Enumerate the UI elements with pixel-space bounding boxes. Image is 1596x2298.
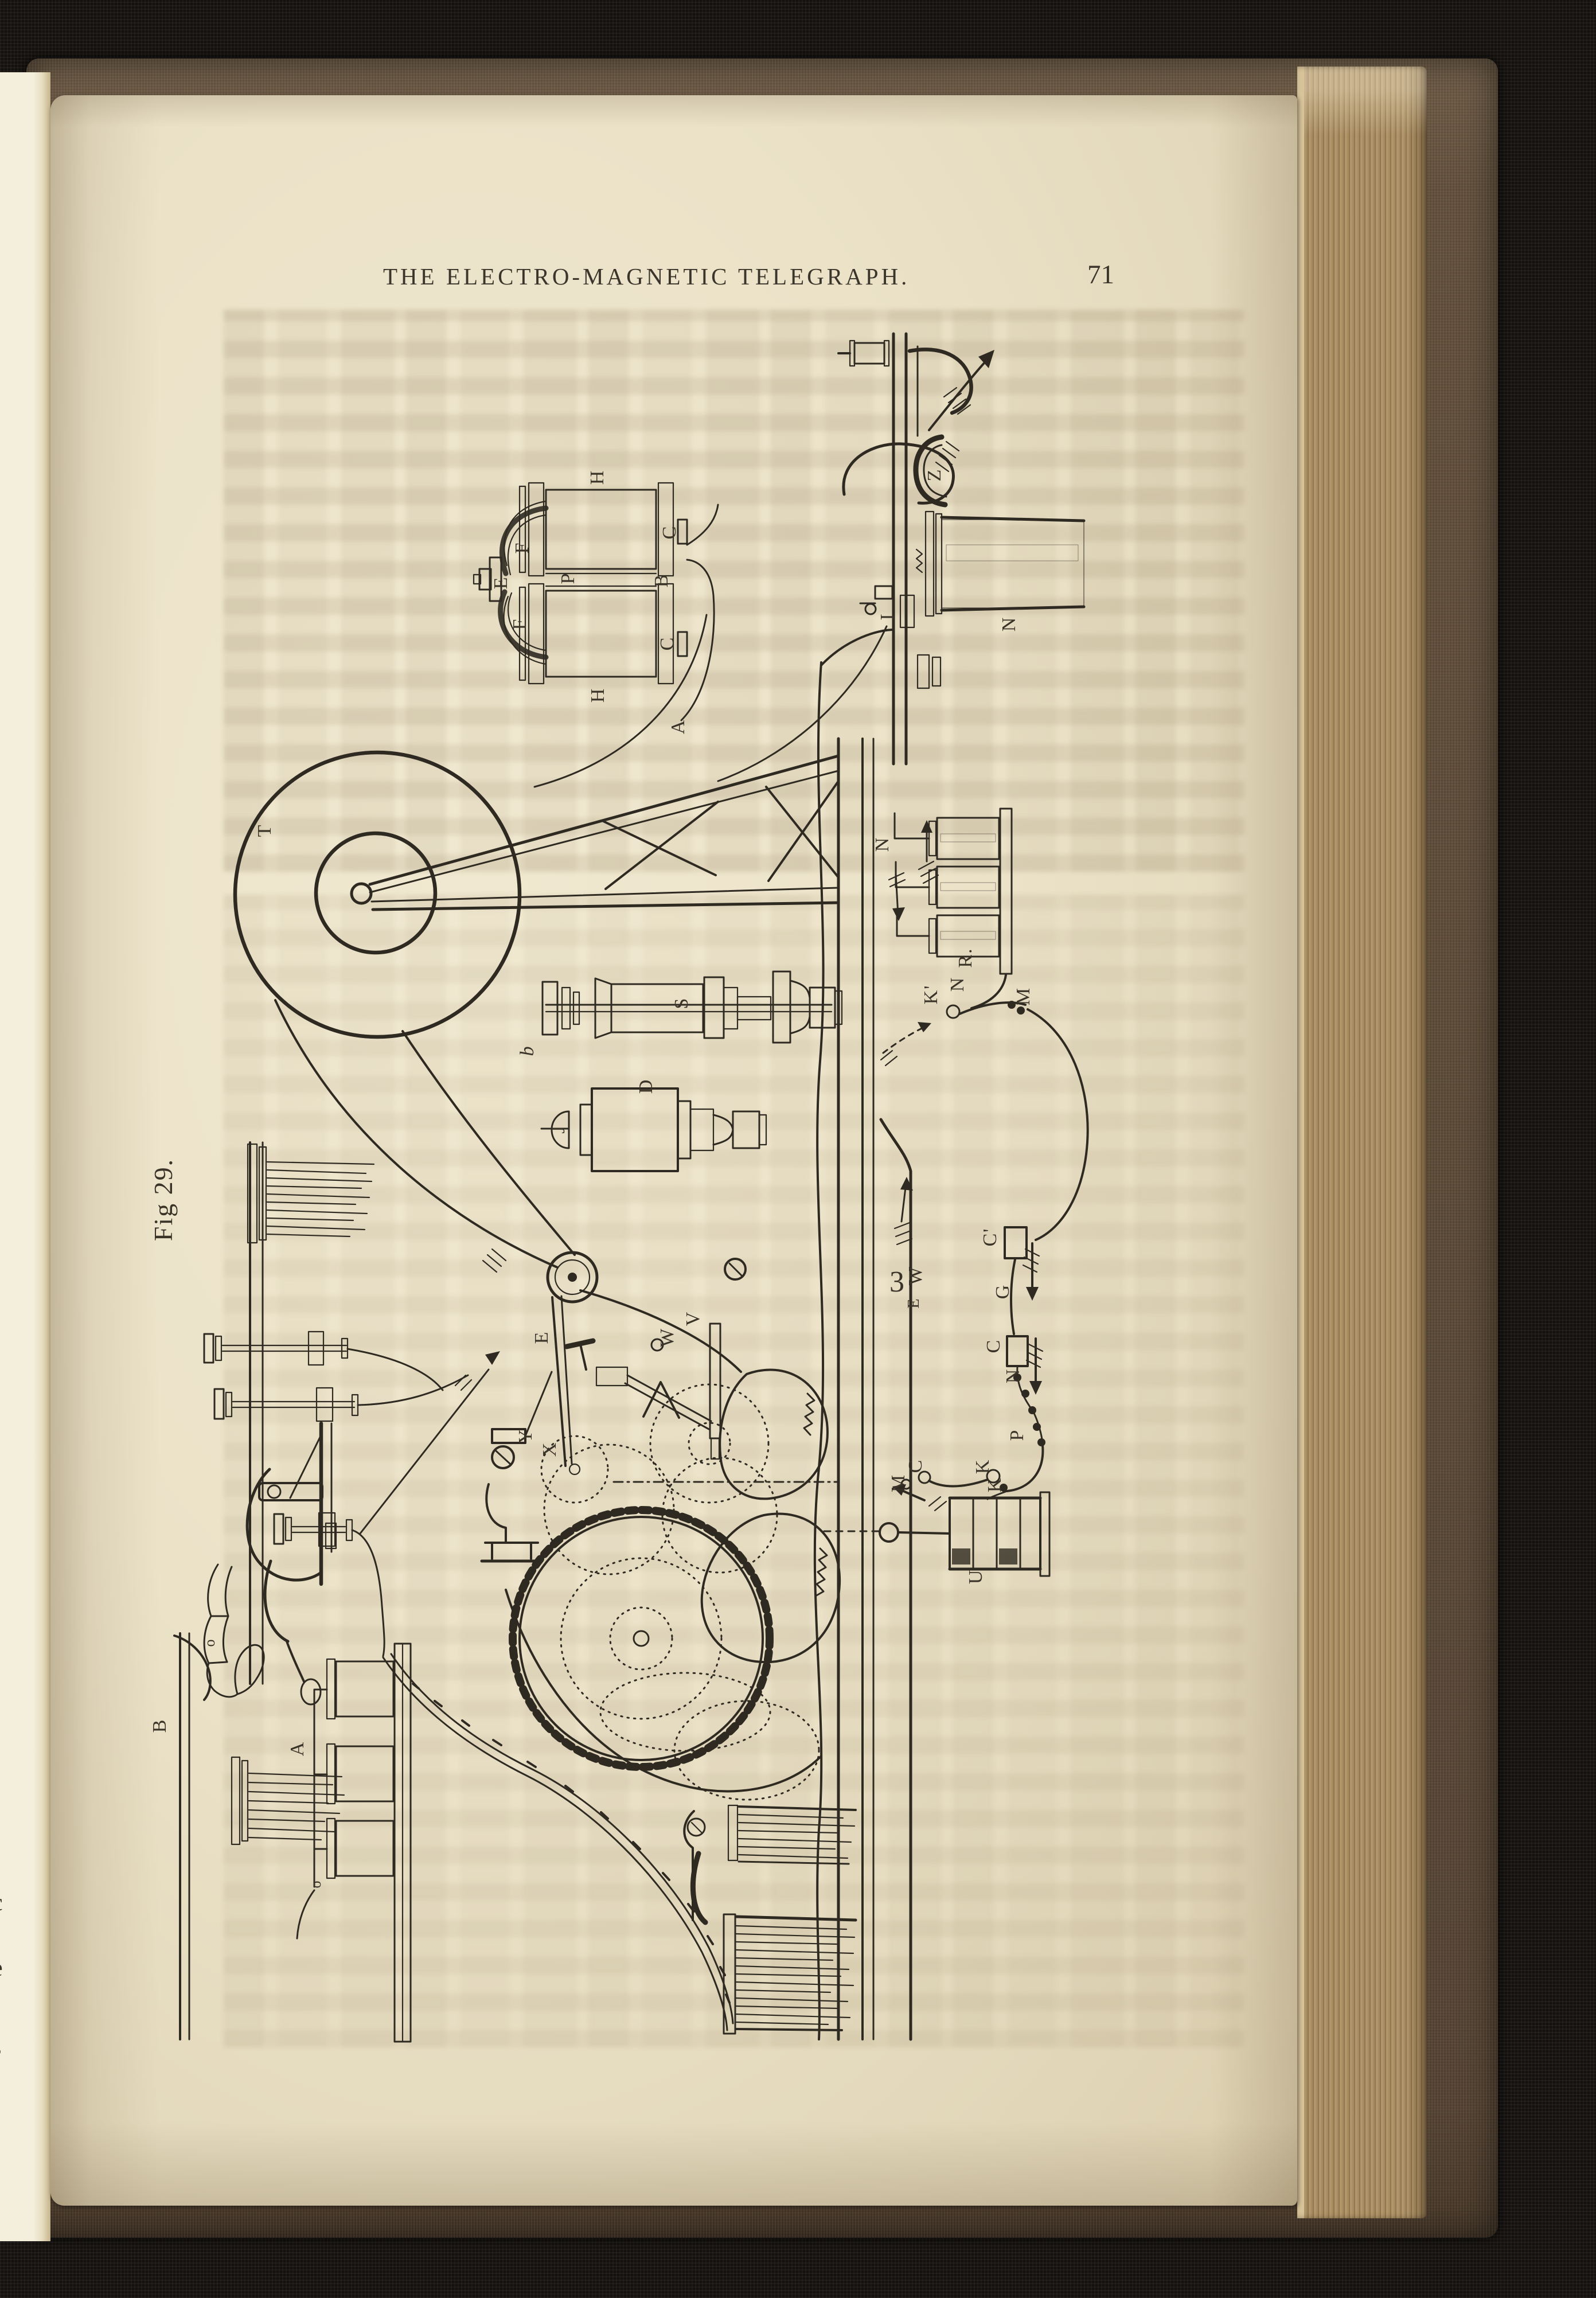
- stylus-post-and-paper-roll: [534, 334, 1084, 787]
- telegraph-key-and-hand: [204, 1423, 336, 1704]
- figure-label: C: [905, 1459, 926, 1473]
- figure-label: P: [1006, 1429, 1028, 1441]
- figure-label: T: [254, 824, 275, 837]
- figure-label: K: [972, 1459, 993, 1474]
- figure-label: S: [671, 997, 692, 1009]
- left-spindles-and-brushes: [204, 1142, 500, 1684]
- figure-label: 3: [889, 1266, 906, 1298]
- figure-label: J: [548, 1125, 569, 1133]
- figure-label: N: [947, 977, 968, 992]
- figure-label: B: [651, 573, 672, 588]
- figure-label: E: [905, 1297, 923, 1308]
- figure-label: Z: [924, 469, 945, 482]
- figure-label: E: [531, 1331, 552, 1344]
- book-photograph: c e s THE ELECTRO-MAGNETIC TELEGRAPH. 71: [0, 0, 1596, 2298]
- figure-label: b: [517, 1045, 538, 1056]
- figure-label: M: [1013, 987, 1034, 1005]
- figure-label: F: [512, 542, 533, 554]
- figure-label: Y: [515, 1429, 536, 1444]
- figure-label: N: [872, 837, 893, 852]
- figure-label: R.: [955, 947, 976, 967]
- drive-wheel-T: [235, 752, 838, 1534]
- figure-label: G: [992, 1284, 1013, 1300]
- figure-label: U: [965, 1569, 986, 1585]
- direction-arrows: [483, 820, 938, 1272]
- relay-coils-R: [895, 809, 1012, 974]
- figure-label: W: [657, 1328, 678, 1347]
- figure-label: K': [920, 985, 942, 1005]
- figure-label: C: [983, 1339, 1004, 1353]
- figure-label: K: [984, 1477, 1005, 1493]
- figure-label: B: [149, 1719, 170, 1733]
- figure-label: A: [287, 1741, 308, 1757]
- figure-label: F: [509, 618, 530, 630]
- battery-cell-U: [824, 1492, 1049, 1576]
- figure-label: A: [668, 719, 689, 735]
- figure-label: Fig 29.: [149, 1158, 178, 1241]
- figure-label: X: [539, 1442, 560, 1457]
- paper-roll: [942, 520, 1084, 608]
- figure-label: o: [201, 1638, 218, 1647]
- figure-label: C: [659, 525, 680, 540]
- figure-label: N: [1002, 1368, 1024, 1384]
- machine-frame: [815, 630, 911, 2039]
- figure-label: V: [682, 1311, 704, 1326]
- morse-tape: [383, 1654, 733, 2030]
- figure-label: M: [888, 1474, 909, 1492]
- figure-label: C': [980, 1228, 1001, 1247]
- figure-label: N: [998, 617, 1020, 632]
- figure-label: C: [657, 637, 678, 651]
- battery-coils-left: [174, 1633, 411, 2042]
- figure-label: H: [587, 688, 608, 703]
- figure-label: E: [490, 576, 512, 590]
- figure-label: H: [587, 470, 608, 485]
- figure-label: o: [307, 1880, 324, 1889]
- figure-label: P: [557, 572, 579, 584]
- figure-label: D: [635, 1079, 657, 1094]
- engraving-svg: Fig 29.HFEFPCBCHAZINTbSDJNR.NK'MC'GCN3WE…: [0, 0, 1596, 2298]
- figure-label: I: [877, 612, 898, 620]
- spindle-S: [543, 972, 842, 1043]
- message-cylinders-bottom: [684, 1805, 856, 2034]
- figure-label: W: [905, 1266, 926, 1285]
